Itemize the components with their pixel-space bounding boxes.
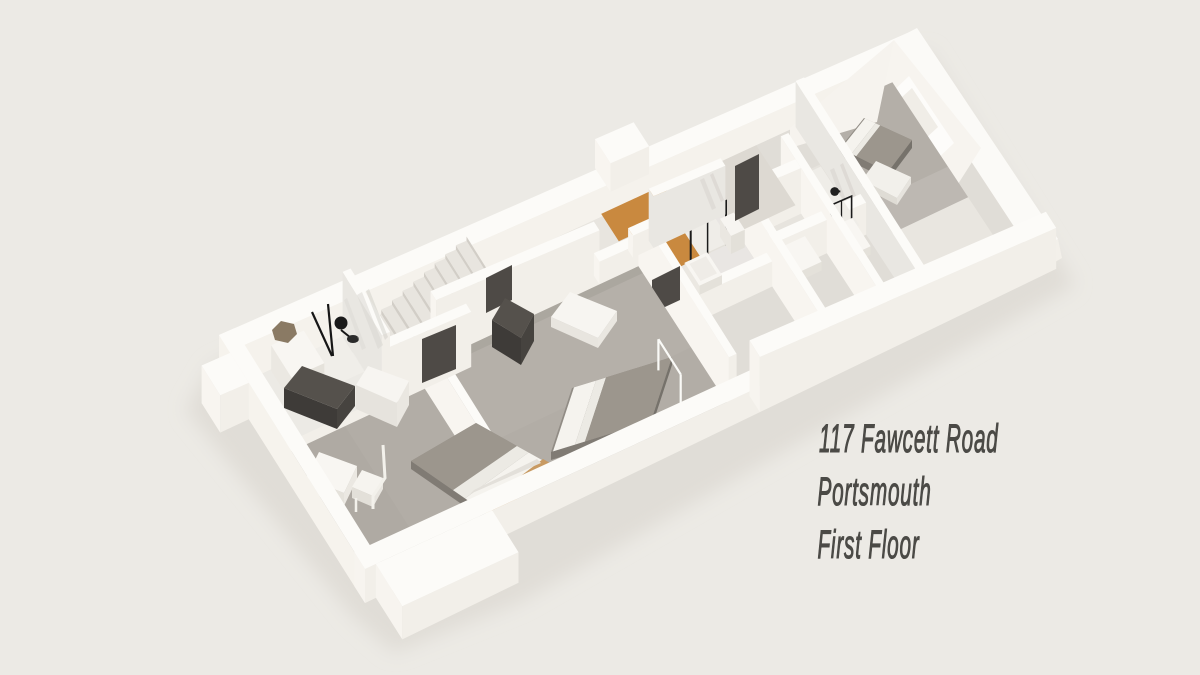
svg-text:First Floor: First Floor [817,522,919,567]
svg-text:Portsmouth: Portsmouth [817,469,931,514]
svg-text:117 Fawcett Road: 117 Fawcett Road [819,416,999,461]
